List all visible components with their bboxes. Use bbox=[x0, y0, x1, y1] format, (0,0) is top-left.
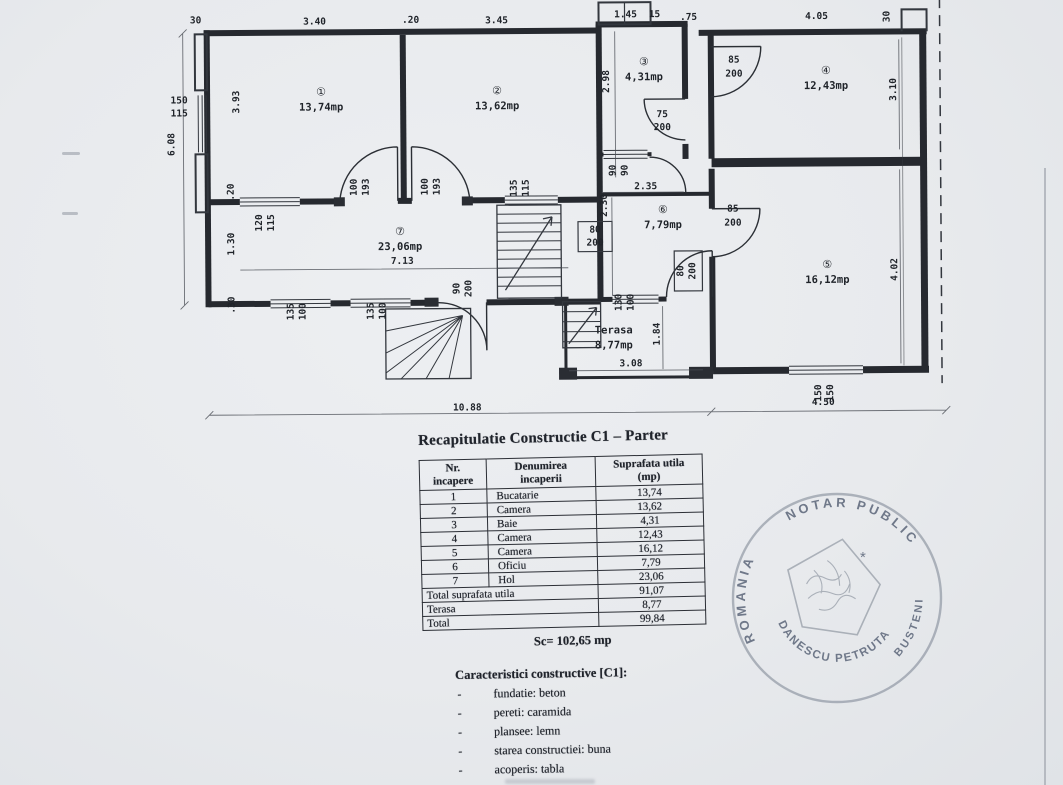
dimension-labels-group: 303.40.203.451.4515.754.05301501156.083.… bbox=[166, 7, 902, 415]
room-labels-group: ①13,74mp②13,62mp③4,31mp④12,43mp⑤16,12mp⑥… bbox=[299, 54, 850, 290]
characteristic-item: -pereti: caramida bbox=[456, 701, 756, 721]
characteristic-item: -plansee: lemn bbox=[456, 720, 756, 740]
room-number: ⑦ bbox=[395, 225, 405, 238]
room-area: 13,62mp bbox=[475, 100, 519, 112]
dimension-label: 1.30 bbox=[226, 232, 237, 255]
bullet-dash: - bbox=[456, 705, 494, 721]
stamp-star: * bbox=[860, 549, 866, 566]
dimension-label: 130 bbox=[613, 293, 624, 311]
dimension-label: .75 bbox=[680, 12, 698, 23]
column-header: Suprafata utila(mp) bbox=[595, 454, 703, 487]
dimension-label: 150 bbox=[171, 95, 189, 106]
row-number-cell: 6 bbox=[421, 559, 488, 575]
bullet-dash: - bbox=[456, 743, 494, 759]
built-area-line: Sc= 102,65 mp bbox=[423, 630, 723, 652]
dimension-label: 3.40 bbox=[303, 16, 326, 27]
dimension-label: 10.88 bbox=[453, 402, 482, 413]
dimension-label: .30 bbox=[226, 296, 237, 314]
dimension-label: 100 bbox=[625, 293, 636, 311]
dimension-label: 135 bbox=[509, 179, 520, 197]
dimension-label: 80 bbox=[589, 225, 601, 236]
characteristic-item: -fundatie: beton bbox=[455, 682, 755, 702]
row-number-cell: 7 bbox=[422, 573, 489, 589]
margin-mark bbox=[62, 212, 78, 215]
dimension-label: 100 bbox=[298, 303, 309, 321]
dimension-label: 115 bbox=[171, 108, 189, 119]
stamp-title-text: NOTAR PUBLIC bbox=[783, 495, 922, 548]
dimension-label: 85 bbox=[728, 55, 740, 66]
dimension-label: 135 bbox=[366, 302, 377, 320]
dimension-label: .20 bbox=[226, 183, 237, 201]
recap-section: Recapitulatie Constructie C1 – Parter Nr… bbox=[418, 426, 723, 652]
row-number-cell: 2 bbox=[420, 503, 487, 519]
bullet-dash: - bbox=[455, 686, 493, 702]
bullet-dash: - bbox=[456, 762, 494, 778]
room-number: ⑤ bbox=[822, 258, 832, 271]
room-number: ② bbox=[492, 84, 502, 97]
dimension-label: 193 bbox=[432, 178, 443, 196]
stamp-city-text: BUSTENI bbox=[892, 597, 926, 659]
scanned-document-page: 303.40.203.451.4515.754.05301501156.083.… bbox=[0, 0, 1063, 785]
dimension-label: 1.84 bbox=[652, 322, 663, 345]
dimension-label: 115 bbox=[521, 179, 532, 197]
dimension-label: 120 bbox=[254, 214, 265, 232]
room-area: 16,12mp bbox=[805, 274, 849, 286]
dimension-label: 85 bbox=[727, 204, 739, 215]
summary-label-cell: Total bbox=[423, 613, 599, 631]
dimension-label: 7.13 bbox=[391, 256, 414, 267]
dimension-label: 3.93 bbox=[231, 90, 242, 113]
walls-group bbox=[194, 0, 929, 382]
column-header: Denumireaincaperii bbox=[486, 456, 596, 489]
room-number: ① bbox=[316, 85, 326, 98]
dimension-label: 30 bbox=[190, 15, 202, 26]
dimension-label: 80 bbox=[675, 265, 686, 277]
notary-stamp: ROMANIA NOTAR PUBLIC DANESCU PETRUTA BUS… bbox=[712, 486, 968, 722]
page-fold-line bbox=[1044, 168, 1046, 785]
dimension-label: 100 bbox=[378, 302, 389, 320]
characteristic-text: pereti: caramida bbox=[494, 704, 572, 720]
room-area: 7,79mp bbox=[644, 219, 682, 231]
dimension-label: 4.02 bbox=[889, 258, 900, 281]
dimension-label: 2.30 bbox=[599, 194, 610, 217]
dimension-label: 2.98 bbox=[601, 70, 612, 93]
dimension-label: 3.45 bbox=[485, 15, 508, 26]
dimension-label: 100 bbox=[420, 178, 431, 196]
dimension-label: 200 bbox=[724, 218, 742, 229]
characteristic-text: acoperis: tabla bbox=[494, 761, 564, 777]
room-number: ⑥ bbox=[658, 203, 668, 216]
dimension-label: 200 bbox=[463, 280, 474, 298]
stamp-name-text: DANESCU PETRUTA bbox=[775, 619, 893, 665]
room-number: ③ bbox=[639, 55, 649, 68]
dimension-label: .20 bbox=[402, 15, 420, 26]
cutoff-text-smudge bbox=[505, 779, 595, 784]
characteristic-text: starea constructiei: buna bbox=[494, 742, 611, 759]
dimension-label: 200 bbox=[654, 122, 672, 133]
dimension-label: 3.08 bbox=[619, 358, 642, 369]
dimension-label: 193 bbox=[361, 178, 372, 196]
characteristic-item: -acoperis: tabla bbox=[456, 758, 756, 778]
dimension-label: 200 bbox=[725, 69, 743, 80]
margin-mark bbox=[62, 152, 80, 155]
dimension-label: 6.08 bbox=[166, 133, 177, 156]
dimension-label: 115 bbox=[266, 214, 277, 232]
room-area: 12,43mp bbox=[804, 80, 848, 92]
dimension-label: 4.50 bbox=[812, 397, 835, 408]
floor-plan-drawing: 303.40.203.451.4515.754.05301501156.083.… bbox=[0, 0, 1063, 452]
recap-table: Nr.incapereDenumireaincaperiiSuprafata u… bbox=[419, 454, 707, 632]
dimension-label: 100 bbox=[349, 178, 360, 196]
dimension-label: 90 bbox=[620, 164, 631, 176]
summary-value-cell: 99,84 bbox=[599, 610, 706, 626]
row-number-cell: 3 bbox=[420, 517, 487, 533]
dimension-label: 3.10 bbox=[888, 78, 899, 101]
characteristics-title: Caracteristici constructive [C1]: bbox=[455, 663, 755, 683]
room-area: 4,31mp bbox=[625, 71, 663, 83]
dimension-lines-group bbox=[178, 0, 950, 419]
characteristic-text: plansee: lemn bbox=[494, 723, 561, 739]
dimension-label: 135 bbox=[286, 303, 297, 321]
dimension-label: 15 bbox=[649, 9, 661, 20]
dimension-label: 200 bbox=[687, 262, 698, 280]
dimension-label: 200 bbox=[587, 237, 605, 248]
bullet-dash: - bbox=[456, 724, 494, 740]
room-number: ④ bbox=[821, 64, 831, 77]
room-area: 23,06mp bbox=[378, 241, 422, 253]
row-number-cell: 5 bbox=[421, 545, 488, 561]
terasa-area: 8,77mp bbox=[595, 339, 633, 351]
windows-group bbox=[198, 91, 863, 379]
dimension-label: 1.45 bbox=[614, 9, 637, 20]
dimension-label: 90 bbox=[451, 282, 462, 294]
row-number-cell: 4 bbox=[421, 531, 488, 547]
stairs-group bbox=[385, 205, 601, 379]
dimension-label: 75 bbox=[656, 109, 668, 120]
terasa-label: Terasa bbox=[595, 324, 633, 336]
dimension-label: 2.35 bbox=[634, 181, 657, 192]
dimension-label: 4.05 bbox=[805, 11, 828, 22]
characteristic-text: fundatie: beton bbox=[493, 685, 566, 701]
characteristic-item: -starea constructiei: buna bbox=[456, 739, 756, 759]
row-number-cell: 1 bbox=[420, 489, 487, 505]
dimension-label: 90 bbox=[608, 164, 619, 176]
column-header: Nr.incapere bbox=[419, 459, 487, 491]
room-area: 13,74mp bbox=[299, 101, 343, 113]
dimension-label: 30 bbox=[882, 10, 893, 22]
